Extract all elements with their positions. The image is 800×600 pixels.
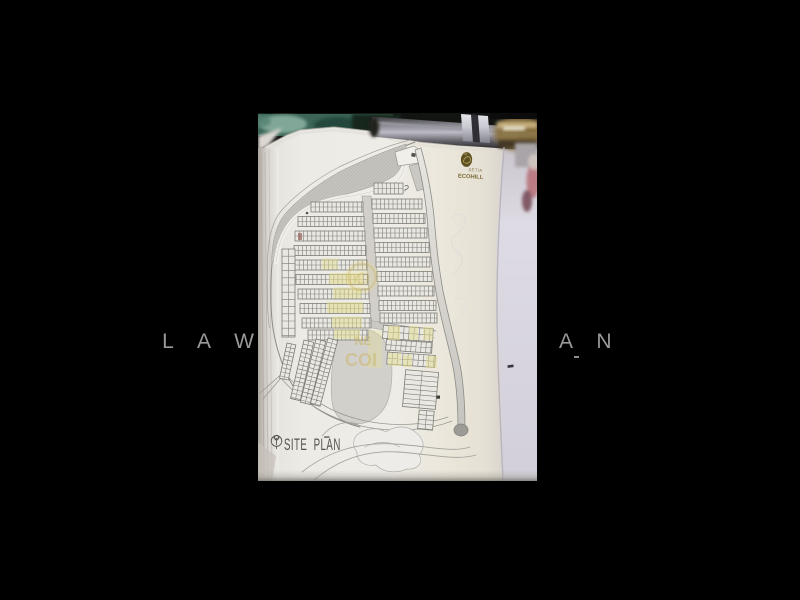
svg-text:SETIA: SETIA	[468, 167, 482, 173]
svg-text:L: L	[162, 330, 174, 353]
svg-text:W: W	[234, 330, 254, 353]
svg-text:SITE PLAN: SITE PLAN	[284, 434, 341, 454]
svg-text:N: N	[596, 330, 611, 353]
svg-text:A: A	[197, 330, 211, 353]
svg-text:NE: NE	[355, 334, 372, 348]
svg-text:A: A	[559, 330, 573, 353]
svg-text:COI: COI	[345, 350, 377, 370]
